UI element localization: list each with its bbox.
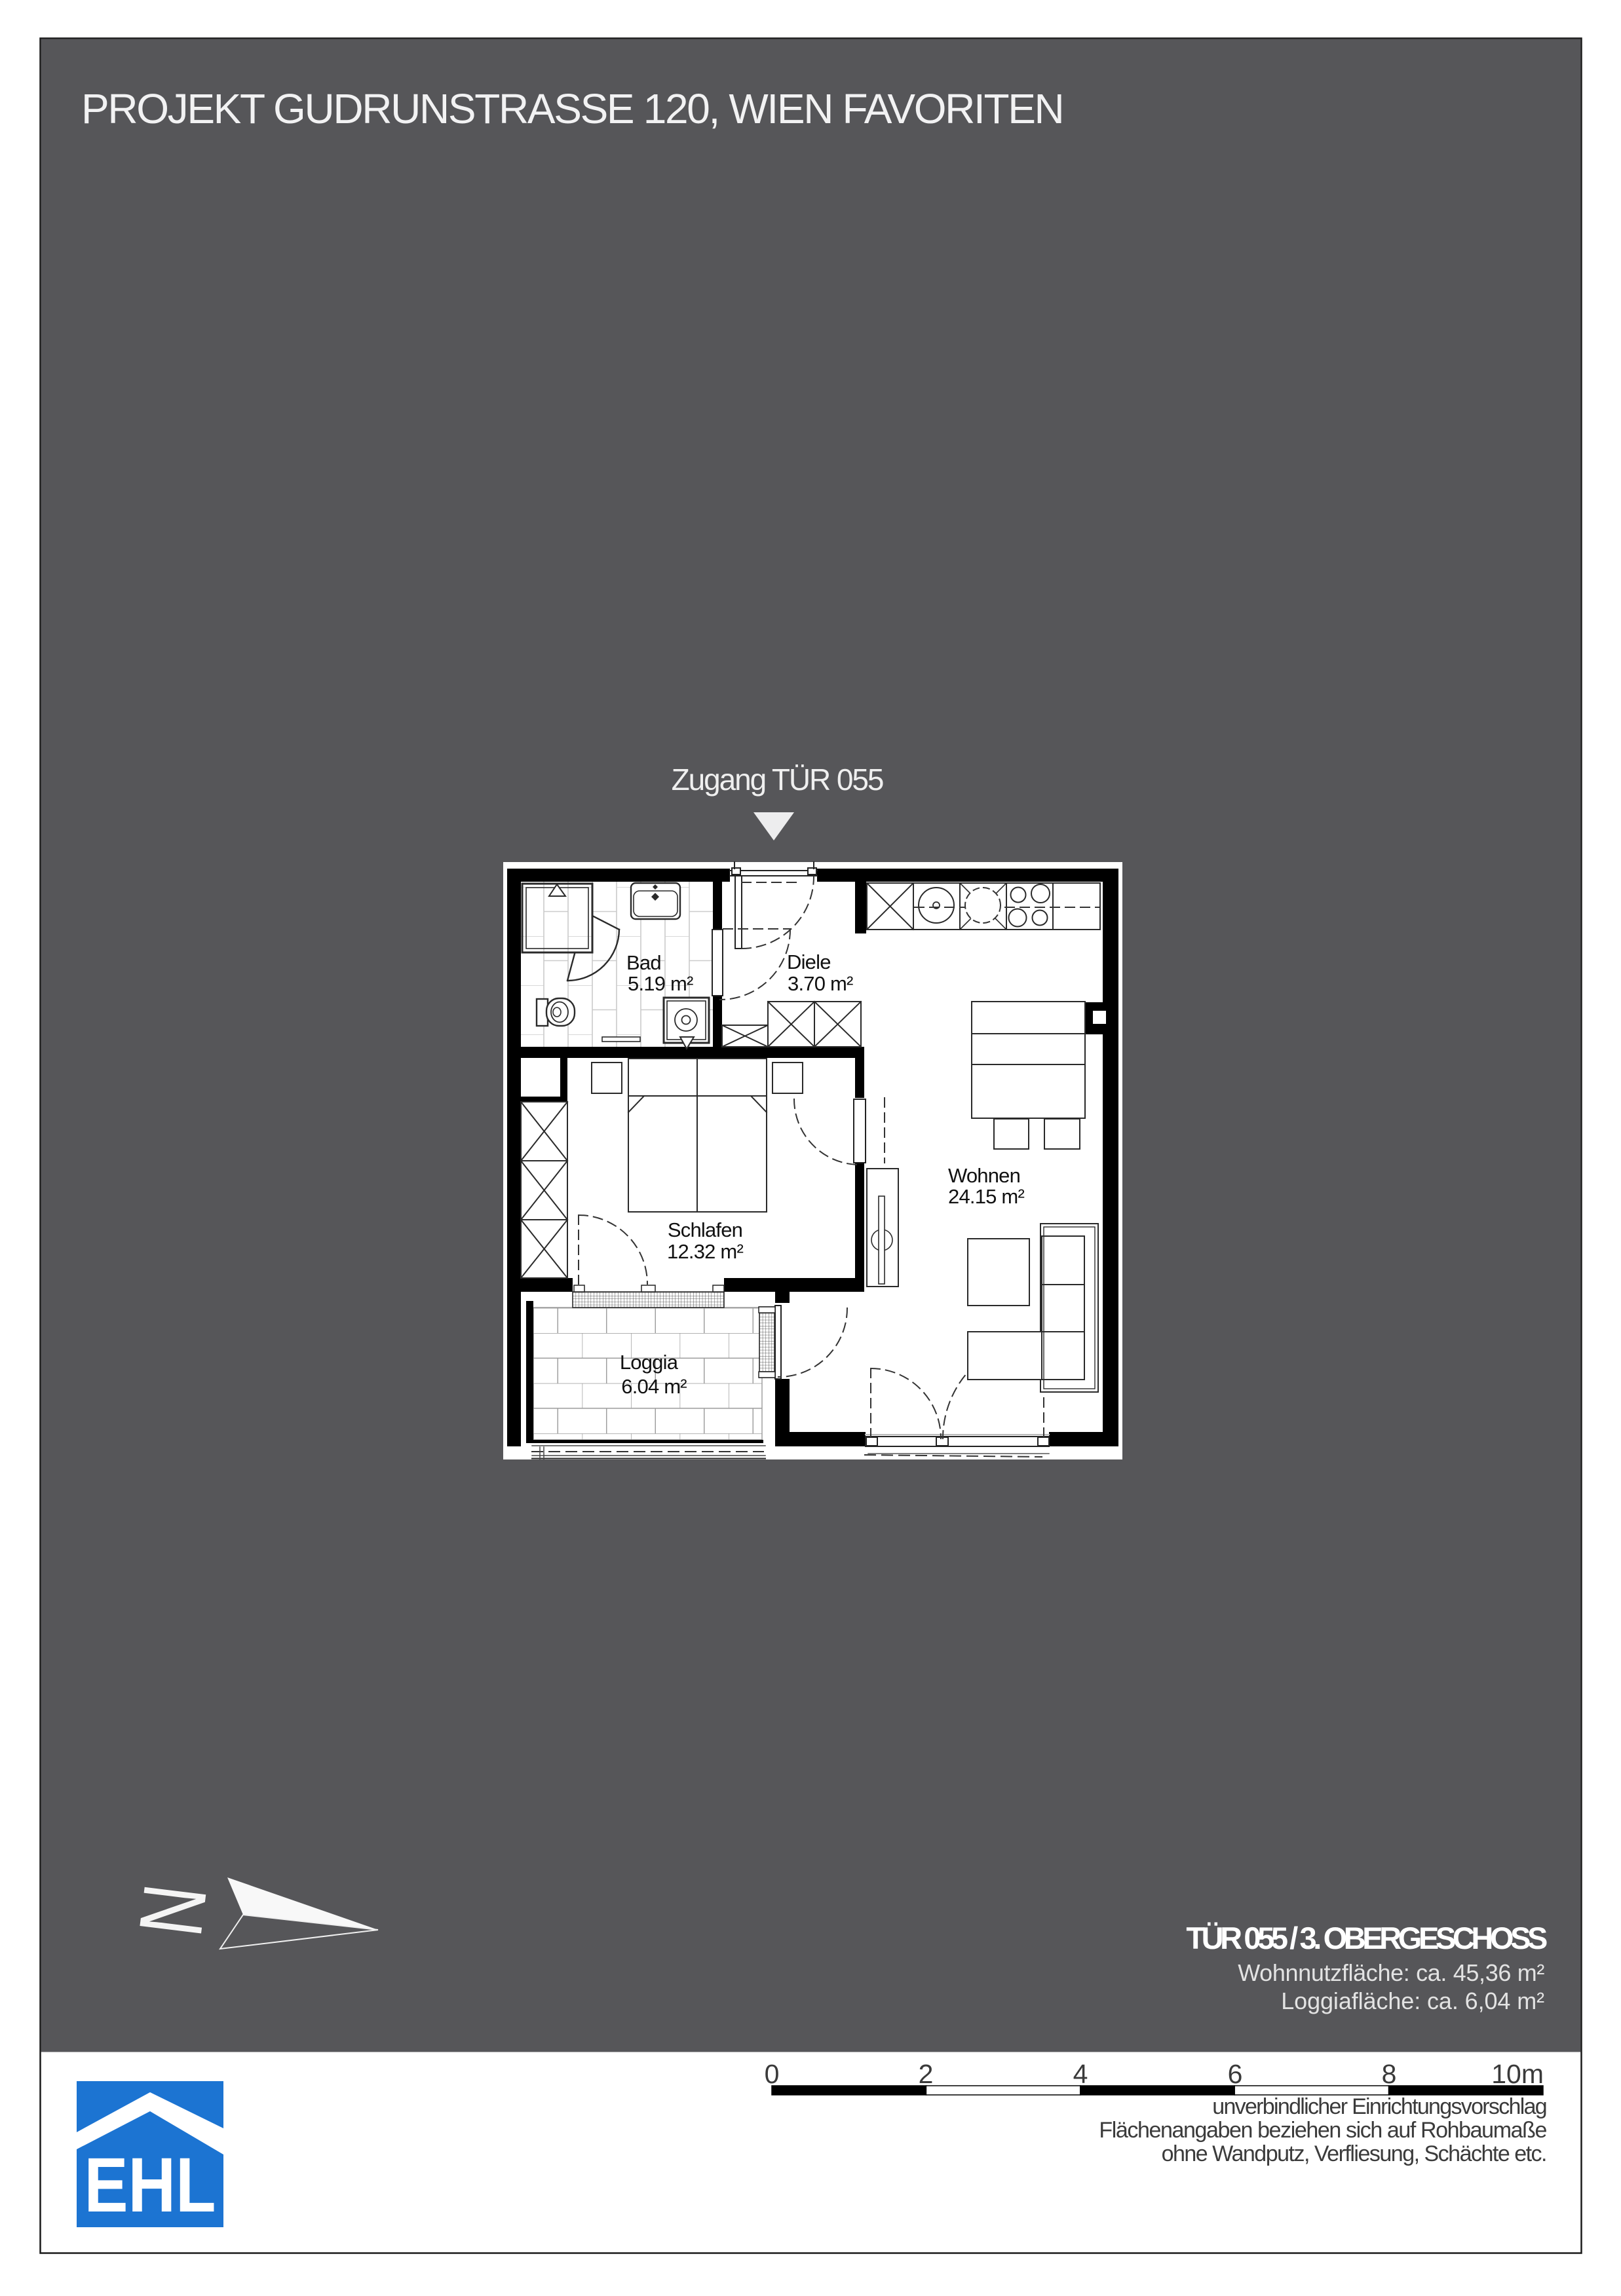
svg-text:6.04 m²: 6.04 m² [621,1375,687,1398]
svg-text:Bad: Bad [626,951,661,974]
svg-text:10m: 10m [1491,2059,1544,2089]
svg-text:Wohnnutzfläche: ca. 45,36 m²: Wohnnutzfläche: ca. 45,36 m² [1238,1959,1544,1986]
svg-text:4: 4 [1073,2059,1088,2089]
svg-text:Zugang TÜR 055: Zugang TÜR 055 [672,762,883,797]
svg-text:6: 6 [1228,2059,1243,2089]
svg-text:24.15 m²: 24.15 m² [948,1185,1024,1208]
svg-text:8: 8 [1382,2059,1397,2089]
svg-text:12.32 m²: 12.32 m² [667,1240,743,1263]
svg-text:0: 0 [765,2059,780,2089]
svg-text:3.70 m²: 3.70 m² [788,972,853,995]
svg-text:unverbindlicher Einrichtungsvo: unverbindlicher Einrichtungsvorschlag [1212,2094,1546,2119]
svg-text:TÜR 055 / 3. OBERGESCHOSS: TÜR 055 / 3. OBERGESCHOSS [1186,1921,1547,1955]
svg-text:Loggiafläche: ca. 6,04 m²: Loggiafläche: ca. 6,04 m² [1281,1987,1544,2014]
svg-text:Loggia: Loggia [620,1351,679,1374]
svg-text:EHL: EHL [85,2142,216,2229]
svg-text:Flächenangaben beziehen sich a: Flächenangaben beziehen sich auf Rohbaum… [1099,2118,1546,2143]
svg-text:2: 2 [919,2059,934,2089]
svg-text:PROJEKT GUDRUNSTRASSE 120, WIE: PROJEKT GUDRUNSTRASSE 120, WIEN FAVORITE… [81,85,1063,132]
svg-text:ohne Wandputz, Verfliesung, Sc: ohne Wandputz, Verfliesung, Schächte etc… [1162,2141,1546,2166]
svg-text:Diele: Diele [787,950,831,973]
svg-text:5.19 m²: 5.19 m² [628,972,693,995]
svg-text:Schlafen: Schlafen [668,1218,742,1241]
svg-text:Wohnen: Wohnen [948,1164,1020,1187]
